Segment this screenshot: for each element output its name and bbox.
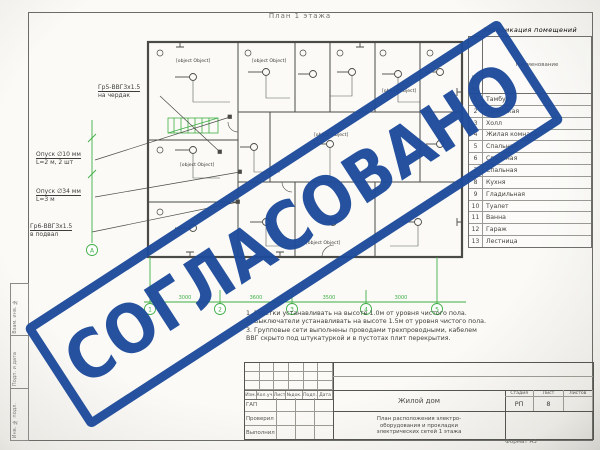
document-name: План расположения электро-оборудования и… <box>333 411 506 440</box>
callout-line: Гр6-ВВГ3х1.5 <box>30 223 72 231</box>
staircase-symbol <box>168 118 218 133</box>
side-cell-label: Инв. № подл. <box>12 403 18 438</box>
signature-cell <box>277 426 296 439</box>
signature-cell <box>296 412 315 425</box>
table-row: 13Лестница <box>469 236 591 247</box>
callout-drop-10mm: Опуск ∅10 мм L=2 м, 2 шт <box>36 151 81 166</box>
signature-cell <box>315 398 333 411</box>
stage-value: РП <box>505 397 534 411</box>
room-name: Кухня <box>483 177 591 188</box>
room-name: Лестница <box>483 236 591 247</box>
callout-line: Гр5-ВВГ3х1.5 <box>98 84 140 92</box>
signature-cell <box>296 426 315 439</box>
svg-text:[object Object]: [object Object] <box>252 58 286 64</box>
signature-cell <box>296 398 315 411</box>
sheets-header: Листов <box>564 390 593 397</box>
title-block: Изм.Кол.уч.Лист№док.Подп.Дата ГАППровери… <box>244 362 594 440</box>
table-row: 10Туалет <box>469 201 591 213</box>
callout-line: L=3 м <box>36 196 55 203</box>
frame-side-strip: Взам. инв. № Подп. и дата Инв. № подл. <box>10 283 29 441</box>
signature-row: Проверил <box>245 412 333 426</box>
svg-text:[object Object]: [object Object] <box>176 58 210 64</box>
document-name-line: План расположения электро- <box>377 416 461 423</box>
table-row: 9Гладильная <box>469 189 591 201</box>
note-line: 1. Розетки устанавливать на высоте 1.0м … <box>246 310 536 318</box>
callout-line: на чердак <box>98 92 130 99</box>
sheet-number: 8 <box>534 397 563 411</box>
svg-text:[object Object]: [object Object] <box>180 162 214 168</box>
svg-text:3000: 3000 <box>395 295 408 301</box>
row-number: 9 <box>469 189 483 200</box>
stage-headers: Стадия Лист Листов <box>505 390 593 397</box>
note-line: 3. Групповые сети выполнены проводами тр… <box>246 327 536 335</box>
callout-line: L=2 м, 2 шт <box>36 159 73 166</box>
room-name: Туалет <box>483 201 591 212</box>
row-number: 10 <box>469 201 483 212</box>
sheets-total <box>564 397 593 411</box>
table-row: 8Кухня <box>469 177 591 189</box>
role-label: Выполнил <box>245 426 277 439</box>
role-label: ГАП <box>245 398 277 411</box>
callout-basement-cable: Гр6-ВВГ3х1.5 в подвал <box>30 223 72 238</box>
callout-drop-34mm: Опуск ∅34 мм L=3 м <box>36 188 81 203</box>
callout-line: в подвал <box>30 231 58 238</box>
room-name: Гладильная <box>483 189 591 200</box>
note-line: 2. Выключатели устанавливать на высоте 1… <box>246 318 536 326</box>
table-row: 11Ванна <box>469 212 591 224</box>
document-name-line: электрических сетей 1 этажа <box>377 429 462 436</box>
note-line: ВВГ скрыто под штукатуркой и в пустотах … <box>246 335 536 343</box>
room-name: Спальная <box>483 165 591 176</box>
room-name: Ванна <box>483 212 591 223</box>
left-dimension-line <box>87 120 98 256</box>
svg-text:3500: 3500 <box>323 295 336 301</box>
signature-cell <box>277 412 296 425</box>
callout-line: Опуск ∅34 мм <box>36 188 81 196</box>
callout-attic-cable: Гр5-ВВГ3х1.5 на чердак <box>98 84 140 99</box>
table-row: 12Гараж <box>469 224 591 236</box>
stage-header: Стадия <box>505 390 534 397</box>
revision-grid <box>245 363 333 390</box>
signature-cell <box>315 412 333 425</box>
side-cell: Инв. № подл. <box>11 389 28 440</box>
titleblock-top-cell <box>333 363 593 391</box>
sheet-header: Лист <box>534 390 563 397</box>
signature-row: Выполнил <box>245 426 333 439</box>
side-cell-label: Подп. и дата <box>12 352 18 386</box>
callout-line: Опуск ∅10 мм <box>36 151 81 159</box>
format-label: Формат А3 <box>505 439 537 445</box>
side-cell: Подп. и дата <box>11 336 28 388</box>
row-number: 11 <box>469 212 483 223</box>
object-name: Жилой дом <box>333 390 506 411</box>
signature-rows: ГАППроверилВыполнил <box>245 398 333 439</box>
signature-cell <box>277 398 296 411</box>
row-number: 13 <box>469 236 483 247</box>
side-cell-label: Взам. инв. № <box>12 299 18 334</box>
room-name: Гараж <box>483 224 591 235</box>
signature-row: ГАП <box>245 398 333 412</box>
stage-values: РП 8 <box>505 397 593 412</box>
general-notes: 1. Розетки устанавливать на высоте 1.0м … <box>246 310 536 344</box>
role-label: Проверил <box>245 412 277 425</box>
drawing-scan-page: План 1 этажа Взам. инв. № Подп. и дата И… <box>0 0 600 450</box>
signature-cell <box>315 426 333 439</box>
row-number: 12 <box>469 224 483 235</box>
plan-title: План 1 этажа <box>230 12 370 20</box>
